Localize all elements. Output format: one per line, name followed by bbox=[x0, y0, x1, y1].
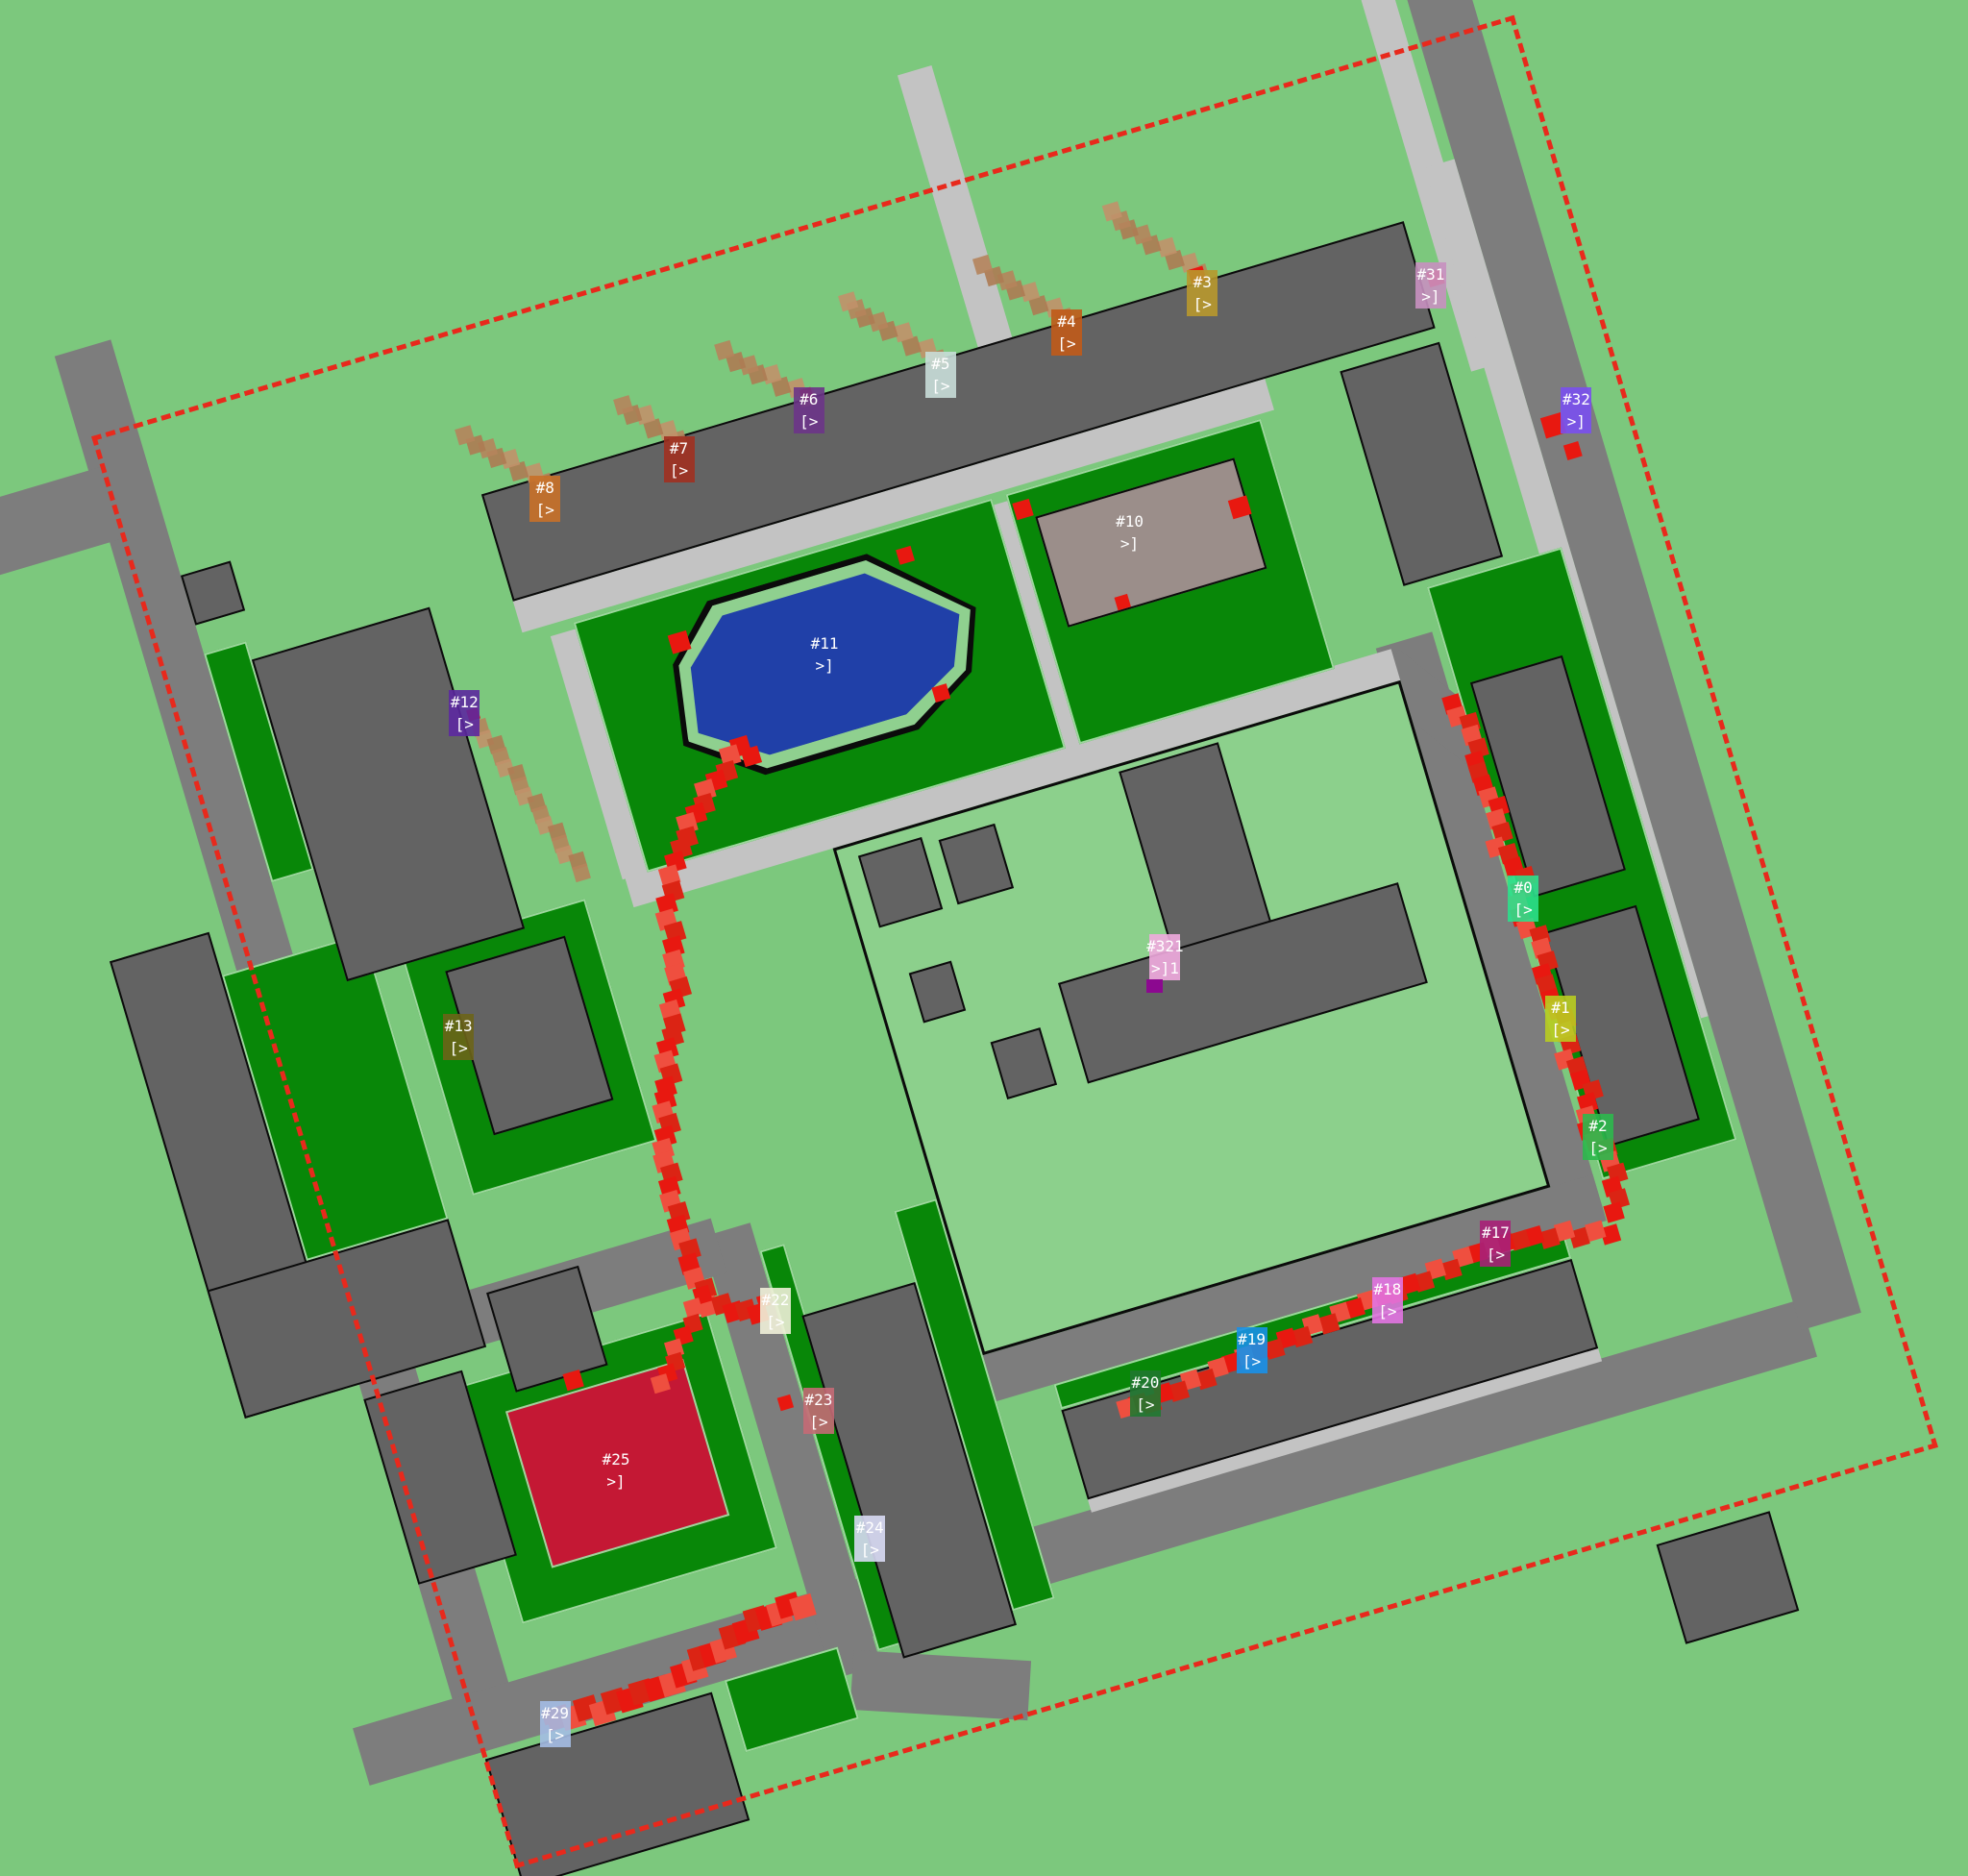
agent-marker-19[interactable]: #19[> bbox=[1237, 1327, 1267, 1373]
agent-id-label: #22 bbox=[761, 1290, 789, 1310]
agent-direction-glyph: [> bbox=[799, 411, 818, 432]
agent-direction-glyph: [> bbox=[861, 1540, 879, 1560]
agent-direction-glyph: [> bbox=[1588, 1138, 1607, 1158]
agent-marker-32[interactable]: #32>] bbox=[1561, 387, 1591, 433]
agent-id-label: #25 bbox=[603, 1449, 630, 1469]
agent-id-label: #13 bbox=[445, 1016, 473, 1036]
agent-direction-glyph: [> bbox=[546, 1725, 564, 1745]
agent-id-label: #29 bbox=[541, 1703, 569, 1723]
agent-direction-glyph: >]1 bbox=[1151, 958, 1179, 978]
agent-marker-17[interactable]: #17[> bbox=[1480, 1221, 1511, 1267]
agent-marker-22[interactable]: #22[> bbox=[760, 1288, 791, 1334]
agent-direction-glyph: [> bbox=[536, 500, 554, 520]
agent-id-label: #20 bbox=[1131, 1372, 1159, 1393]
agent-marker-29[interactable]: #29[> bbox=[540, 1701, 571, 1747]
agent-marker-13[interactable]: #13[> bbox=[443, 1014, 474, 1060]
agent-direction-glyph: [> bbox=[931, 376, 949, 396]
agent-id-label: #0 bbox=[1514, 877, 1533, 898]
agent-id-label: #2 bbox=[1588, 1116, 1607, 1136]
agent-id-label: #12 bbox=[451, 692, 479, 712]
agent-markers-layer: #0[>#1[>#2[>#3[>#4[>#5[>#6[>#7[>#8[>#10>… bbox=[0, 0, 1968, 1876]
agent-direction-glyph: [> bbox=[809, 1412, 827, 1432]
agent-direction-glyph: [> bbox=[1378, 1301, 1396, 1321]
agent-direction-glyph: [> bbox=[670, 460, 688, 481]
agent-id-label: #31 bbox=[1416, 264, 1444, 284]
agent-direction-glyph: >] bbox=[1421, 286, 1439, 307]
agent-direction-glyph: [> bbox=[1136, 1395, 1154, 1415]
agent-marker-1[interactable]: #1[> bbox=[1545, 996, 1576, 1042]
agent-marker-4[interactable]: #4[> bbox=[1051, 309, 1082, 356]
agent-id-label: #4 bbox=[1057, 311, 1075, 332]
agent-id-label: #17 bbox=[1482, 1222, 1510, 1243]
agent-marker-3[interactable]: #3[> bbox=[1187, 270, 1218, 316]
agent-id-label: #3 bbox=[1193, 272, 1212, 292]
agent-direction-glyph: [> bbox=[1242, 1351, 1261, 1371]
agent-direction-glyph: [> bbox=[455, 714, 474, 734]
agent-id-label: #6 bbox=[799, 389, 818, 409]
agent-id-label: #8 bbox=[536, 478, 554, 498]
agent-id-label: #24 bbox=[856, 1518, 884, 1538]
agent-direction-glyph: [> bbox=[1193, 294, 1212, 314]
agent-marker-6[interactable]: #6[> bbox=[794, 387, 824, 433]
agent-marker-10[interactable]: #10>] bbox=[1115, 509, 1145, 555]
agent-id-label: #23 bbox=[805, 1390, 833, 1410]
agent-direction-glyph: [> bbox=[450, 1038, 468, 1058]
agent-direction-glyph: [> bbox=[1514, 900, 1533, 920]
agent-direction-glyph: >] bbox=[815, 655, 833, 676]
agent-marker-23[interactable]: #23[> bbox=[803, 1388, 834, 1434]
agent-id-label: #19 bbox=[1238, 1329, 1266, 1349]
agent-direction-glyph: [> bbox=[1487, 1245, 1505, 1265]
agent-marker-0[interactable]: #0[> bbox=[1508, 876, 1538, 922]
agent-marker-11[interactable]: #11>] bbox=[809, 631, 840, 678]
agent-marker-25[interactable]: #25>] bbox=[601, 1447, 631, 1493]
agent-marker-5[interactable]: #5[> bbox=[925, 352, 956, 398]
agent-direction-glyph: [> bbox=[766, 1312, 784, 1332]
agent-direction-glyph: [> bbox=[1057, 333, 1075, 354]
agent-id-label: #18 bbox=[1373, 1279, 1401, 1299]
agent-marker-12[interactable]: #12[> bbox=[449, 690, 480, 736]
agent-id-label: #7 bbox=[670, 438, 688, 458]
agent-marker-2[interactable]: #2[> bbox=[1583, 1114, 1613, 1160]
agent-direction-glyph: >] bbox=[1567, 411, 1586, 432]
agent-id-label: #1 bbox=[1551, 998, 1569, 1018]
agent-direction-glyph: [> bbox=[1551, 1020, 1569, 1040]
agent-marker-accent bbox=[1146, 979, 1163, 993]
agent-id-label: #5 bbox=[931, 354, 949, 374]
agent-direction-glyph: >] bbox=[606, 1471, 625, 1492]
agent-marker-24[interactable]: #24[> bbox=[854, 1516, 885, 1562]
agent-id-label: #32 bbox=[1562, 389, 1590, 409]
agent-marker-21[interactable]: #321>]1 bbox=[1149, 934, 1180, 980]
agent-marker-20[interactable]: #20[> bbox=[1130, 1370, 1161, 1417]
agent-marker-18[interactable]: #18[> bbox=[1372, 1277, 1403, 1323]
agent-marker-7[interactable]: #7[> bbox=[664, 436, 695, 482]
agent-marker-8[interactable]: #8[> bbox=[529, 476, 560, 522]
agent-marker-31[interactable]: #31>] bbox=[1415, 262, 1446, 309]
agent-id-label: #11 bbox=[811, 633, 839, 654]
simulation-map: #0[>#1[>#2[>#3[>#4[>#5[>#6[>#7[>#8[>#10>… bbox=[0, 0, 1968, 1876]
agent-id-label: #321 bbox=[1146, 936, 1184, 956]
agent-id-label: #10 bbox=[1116, 511, 1144, 531]
agent-direction-glyph: >] bbox=[1120, 533, 1139, 554]
